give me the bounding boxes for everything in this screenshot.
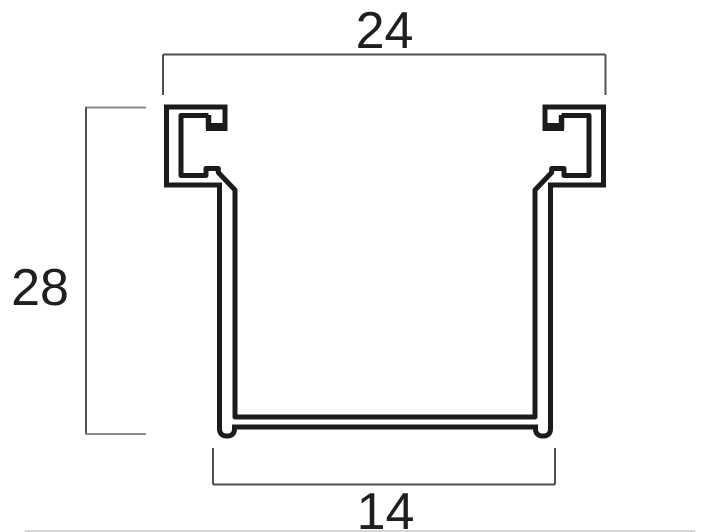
profile-inner-right — [384, 116, 589, 418]
profile-outline — [167, 107, 604, 436]
dim-top-label: 24 — [356, 2, 414, 60]
profile-outer-right — [536, 107, 604, 436]
profile-inner-left — [181, 116, 386, 418]
dim-left-label: 28 — [11, 259, 69, 317]
profile-cross-section-diagram: 24 28 14 — [0, 0, 710, 532]
dim-bottom-label: 14 — [357, 483, 415, 532]
dimension-bottom-width: 14 — [213, 448, 555, 532]
hook-lip-details — [206, 115, 564, 129]
dimension-top-width: 24 — [163, 2, 606, 95]
profile-inner-surfaces — [181, 116, 589, 418]
drawing-canvas: 24 28 14 — [0, 0, 710, 532]
profile-outer-left — [167, 107, 235, 436]
dimension-left-height: 28 — [11, 108, 146, 435]
